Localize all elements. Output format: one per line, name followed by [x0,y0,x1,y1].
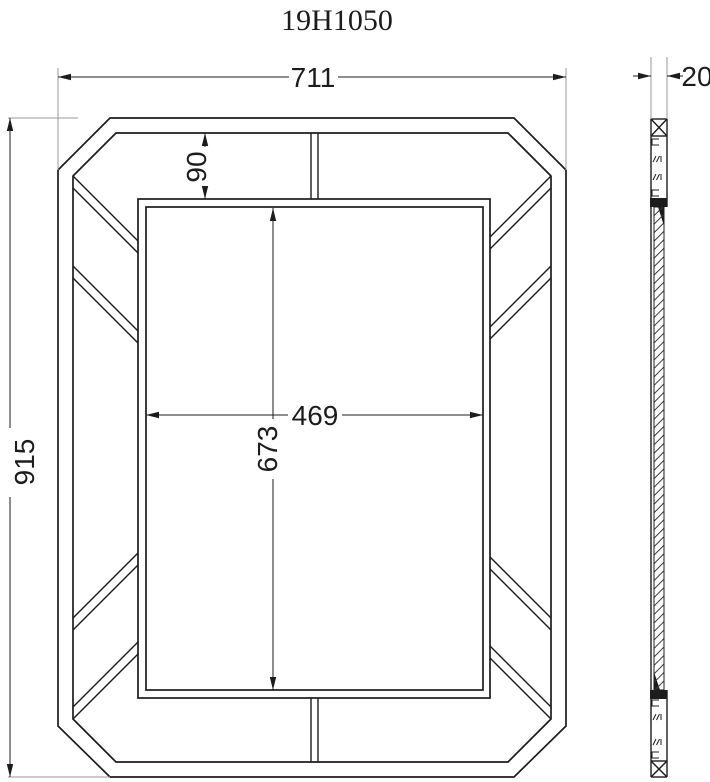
dim-overall-height: 915 [9,439,40,486]
mirror-opening-edge [146,207,483,690]
dim-overall-width: 711 [291,62,336,93]
dim-band-width: 90 [181,151,212,182]
technical-drawing: 19H1050 711 915 90 469 673 20 [0,0,710,782]
dimension-labels: 19H1050 711 915 90 469 673 20 [9,4,710,485]
side-view [650,119,667,777]
outer-frame-inner-edge [73,133,551,762]
frame-struts [73,133,551,762]
top-clip-marks [652,139,661,196]
dim-thickness: 20 [681,61,710,92]
bottom-tube-section-box [651,761,667,777]
mirror-glass-section [654,207,664,690]
inner-frame-outer-edge [138,199,490,698]
front-view [58,118,566,777]
dimension-lines [10,76,683,777]
drawing-page: 19H1050 711 915 90 469 673 20 [0,0,710,782]
dim-opening-height: 673 [252,426,283,473]
drawing-title: 19H1050 [281,4,393,37]
dim-opening-width: 469 [292,400,339,431]
bottom-clip-marks [652,700,661,758]
top-tube-section-box [651,119,667,136]
